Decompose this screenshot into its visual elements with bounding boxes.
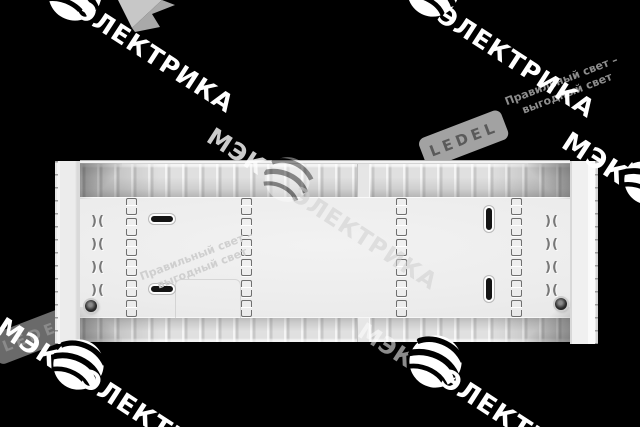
vent-slot [126, 310, 137, 317]
vent-slot [396, 290, 407, 297]
vent-slot [126, 300, 137, 307]
vent-slot [511, 300, 522, 307]
vent-slot [511, 249, 522, 256]
vent-slot [511, 239, 522, 246]
screw [85, 300, 97, 312]
clip-slot: )( [545, 261, 559, 274]
heatsink-fins-bottom [80, 318, 570, 342]
vent-slot [396, 198, 407, 205]
vent-slot [396, 310, 407, 317]
corner-gusset [80, 163, 122, 199]
vent-slot [126, 239, 137, 246]
fin-edge-ticks [55, 161, 58, 344]
vent-slot [511, 259, 522, 266]
band-seam [357, 164, 370, 197]
vent-slot [241, 310, 252, 317]
side-wall-left [55, 161, 80, 344]
vent-slot [511, 208, 522, 215]
clip-slot: )( [545, 215, 559, 228]
vent-slot [126, 280, 137, 287]
clip-slot: )( [91, 215, 105, 228]
vent-slot [126, 290, 137, 297]
clip-slot: )( [91, 261, 105, 274]
vent-slot [241, 218, 252, 225]
vent-slot [126, 259, 137, 266]
vent-slot [241, 290, 252, 297]
corner-gusset [528, 163, 570, 199]
vent-slot [241, 300, 252, 307]
led-panel-rear: )()()()()()()()( [55, 160, 598, 345]
mount-slot-horizontal [149, 214, 175, 224]
clip-slot: )( [545, 284, 559, 297]
corner-gusset [528, 307, 570, 343]
vent-slot [126, 249, 137, 256]
vent-slot [511, 218, 522, 225]
clip-slot: )( [91, 238, 105, 251]
vent-slot [511, 310, 522, 317]
vent-slot [511, 198, 522, 205]
vent-slot [511, 229, 522, 236]
screw [555, 298, 567, 310]
vent-slot [511, 290, 522, 297]
stamp-brand-label: LEDEL [427, 117, 501, 160]
vent-slot [511, 280, 522, 287]
clip-slot: )( [91, 284, 105, 297]
vent-slot [126, 269, 137, 276]
vent-slot [126, 198, 137, 205]
vent-slot [396, 229, 407, 236]
mount-slot-vertical [484, 206, 494, 232]
mount-slot-vertical [484, 276, 494, 302]
fin-edge-ticks [595, 161, 598, 344]
vent-slot [126, 229, 137, 236]
watermark-brand-long: ЭЛЕКТРИКА [76, 366, 248, 427]
side-wall-right [570, 161, 598, 344]
vent-slot [511, 269, 522, 276]
vent-slot [241, 208, 252, 215]
vent-slot [241, 198, 252, 205]
heatsink-fins-top [80, 164, 570, 197]
vent-slot [241, 280, 252, 287]
photo-backdrop: LEDEL LEDEL Правильный свет – выгодный с… [0, 0, 640, 427]
vent-slot [396, 208, 407, 215]
vent-slot [126, 218, 137, 225]
vent-slot [126, 208, 137, 215]
vent-slot [396, 300, 407, 307]
watermark-brand-long: ЭЛЕКТРИКА [436, 366, 608, 427]
clip-slot: )( [545, 238, 559, 251]
vent-slot [241, 269, 252, 276]
vent-slot [396, 218, 407, 225]
